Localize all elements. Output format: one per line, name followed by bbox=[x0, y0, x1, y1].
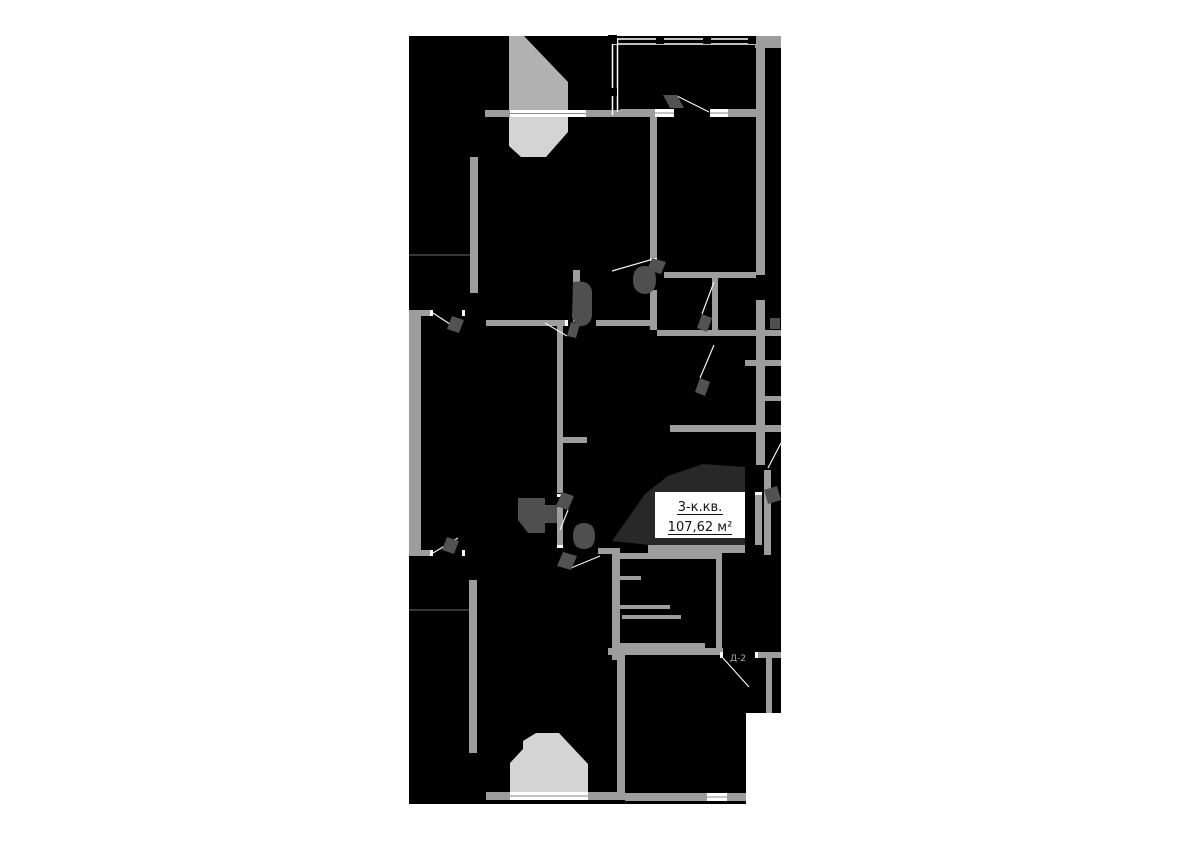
toilet-top-icon bbox=[633, 266, 656, 294]
apartment-label[interactable]: 3-к.кв. 107,62 м² bbox=[655, 492, 745, 538]
window-bottom-right bbox=[707, 793, 727, 801]
water-heater-icon bbox=[572, 281, 592, 326]
page: 3-к.кв. 107,62 м² Д-2 bbox=[0, 0, 1189, 841]
floor-plan: 3-к.кв. 107,62 м² Д-2 bbox=[0, 0, 1189, 841]
window-top-mid bbox=[655, 109, 674, 117]
sink-icon bbox=[545, 505, 557, 523]
door-d2-label: Д-2 bbox=[730, 654, 746, 664]
shaft-icon bbox=[770, 318, 780, 329]
apartment-outline bbox=[409, 36, 781, 804]
window-top-left bbox=[510, 110, 586, 117]
window-bottom-left bbox=[510, 792, 588, 800]
toilet-bottom-icon bbox=[573, 523, 595, 549]
window-top-right bbox=[710, 109, 728, 117]
apartment-type-label: 3-к.кв. bbox=[678, 500, 723, 515]
apartment-area-label: 107,62 м² bbox=[668, 520, 733, 535]
